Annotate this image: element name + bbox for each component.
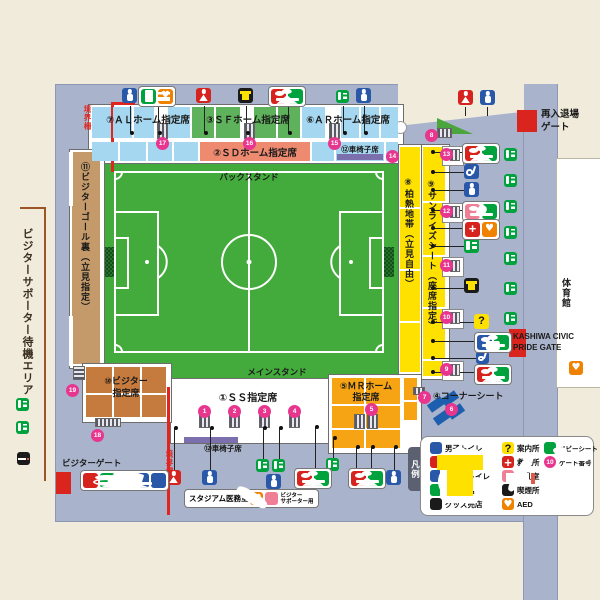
stairs-icon	[437, 128, 452, 138]
goods-shop-icon	[464, 278, 479, 293]
gate-number-badge: 4	[288, 405, 301, 418]
gate-number-badge: 18	[91, 429, 104, 442]
stairs-icon	[354, 414, 365, 429]
gate-number-badge: 2	[228, 405, 241, 418]
first-aid-icon	[465, 222, 480, 237]
ar-stand-label: ⑥ＡＲホーム指定席	[296, 112, 400, 126]
legend-column-1: 男子トイレ 女子トイレ 多目的トイレ 飲食売店 グッズ売店	[430, 441, 490, 511]
first-aid-icon	[502, 456, 514, 468]
information-icon	[474, 314, 489, 329]
leader-dot	[333, 436, 337, 440]
legend-label: 案内所	[517, 443, 540, 454]
male-toilet-icon	[151, 473, 166, 488]
reentry-gate-label-2: ゲート	[541, 119, 570, 133]
goods-shop-icon	[238, 88, 253, 103]
medical-room-box: スタジアム医務室 ビジター サポーター用	[184, 489, 319, 508]
leader-line	[333, 438, 334, 458]
leader-line	[279, 428, 280, 459]
legend-column-3: ベビーシート 10ゲート番号	[544, 441, 598, 469]
male-toilet-icon	[386, 470, 401, 485]
main-stand-label: メインスタンド	[240, 366, 314, 378]
leader-dot	[246, 131, 250, 135]
icon-group	[474, 332, 512, 353]
gate-number-badge: 10	[440, 311, 453, 324]
legend-label: AED	[517, 500, 533, 509]
aed-icon	[502, 498, 514, 510]
aed-icon	[569, 361, 583, 375]
male-toilet-icon	[464, 182, 479, 197]
icon-group	[268, 86, 306, 107]
food-shop-icon	[504, 312, 517, 325]
food-shop-icon	[336, 90, 349, 103]
gate-number-badge: 3	[258, 405, 271, 418]
seat-block	[404, 402, 417, 420]
kashiwa-civic-pride-gate-label-2: PRIDE GATE	[513, 343, 561, 352]
ss-stand-label: ①ＳＳ指定席	[198, 389, 298, 404]
leader-line	[465, 107, 466, 116]
food-shop-icon	[504, 200, 517, 213]
stadium-map: 体育館 バックスタンド メ	[0, 0, 600, 600]
gate-number-badge: 16	[243, 137, 256, 150]
food-shop-icon	[430, 484, 442, 496]
al-stand-label: ⑦ＡＬホーム指定席	[96, 112, 200, 126]
visitor-gate-marker	[56, 472, 71, 494]
baby-seat-icon	[544, 442, 556, 454]
leader-line	[356, 447, 357, 468]
leader-dot	[356, 445, 360, 449]
icon-group	[138, 86, 176, 107]
legend-label: 喫煙所	[517, 485, 540, 496]
icon-group	[462, 143, 500, 164]
leader-dot	[263, 426, 267, 430]
leader-dot	[279, 426, 283, 430]
gate-number-badge: 19	[66, 384, 79, 397]
gate-number-badge: 5	[365, 403, 378, 416]
gate-number-badge: 7	[418, 391, 431, 404]
goods-shop-icon	[430, 498, 442, 510]
waiting-area-label: ビジターサポーター待機エリア	[19, 228, 35, 414]
back-stand-label: バックスタンド	[212, 171, 286, 183]
leader-dot	[158, 131, 162, 135]
gate-number-badge: 14	[386, 150, 399, 163]
food-shop-icon	[16, 398, 29, 411]
mr-stand-label-2: 指定席	[332, 390, 400, 403]
leader-line	[434, 341, 474, 342]
leader-dot	[371, 445, 375, 449]
female-toilet-icon	[458, 90, 473, 105]
sunrise-label: ⑨サンライズシート（座席指定）	[426, 180, 439, 370]
visitor-goal-aisle	[69, 152, 73, 206]
food-shop-icon	[464, 238, 479, 253]
icon-group	[294, 468, 332, 489]
food-shop-icon	[504, 174, 517, 187]
seat-block	[92, 142, 118, 161]
leader-line	[434, 172, 464, 173]
wheelchair-back-label: ⑫車椅子席	[334, 144, 386, 155]
food-shop-icon	[504, 148, 517, 161]
icon-group	[348, 468, 386, 489]
hakunetsu-label: ⑧柏熱地帯（立見自由）	[403, 178, 416, 368]
icon-group	[462, 219, 500, 240]
gym-building	[556, 158, 600, 388]
sd-stand-label: ②ＳＤホーム指定席	[200, 145, 310, 159]
accessible-toilet-icon	[464, 164, 479, 179]
leader-line	[263, 428, 264, 459]
gate-number-badge: 9	[440, 363, 453, 376]
kashiwa-civic-pride-gate-label-1: KASHIWA CIVIC	[513, 332, 574, 341]
gate-number-badge: 11	[440, 259, 453, 272]
icon-group	[474, 364, 512, 385]
gate-number-badge: 12	[440, 205, 453, 218]
gate-number-badge: 6	[445, 403, 458, 416]
female-toilet-icon	[196, 88, 211, 103]
visitor-supporter-label-2: サポーター用	[280, 499, 313, 505]
male-toilet-icon	[480, 90, 495, 105]
gate-number-badge: 17	[156, 137, 169, 150]
food-shop-icon	[504, 282, 517, 295]
aed-icon	[482, 222, 497, 237]
leader-dot	[204, 131, 208, 135]
leader-dot	[431, 170, 435, 174]
seat-block	[174, 142, 198, 161]
pitch	[97, 163, 398, 385]
gate-number-icon: 10	[544, 456, 556, 468]
gate-number-badge: 13	[440, 148, 453, 161]
gate-number-badge: 15	[328, 137, 341, 150]
leader-dot	[174, 426, 178, 430]
leader-line	[371, 447, 372, 468]
food-shop-icon	[504, 252, 517, 265]
corner-seat-label: ④コーナーシート	[433, 389, 503, 402]
ss-stand-base	[170, 378, 334, 444]
icon-group	[80, 470, 169, 491]
leader-line	[434, 358, 476, 359]
male-toilet-icon	[356, 88, 371, 103]
wheelchair-main-label: ⑫車椅子席	[193, 443, 253, 454]
visitor-seats-label-2: 指定席	[84, 386, 168, 399]
visitor-goal-label: ⑪ビジターゴール裏（立見指定）	[79, 162, 92, 362]
male-toilet-icon	[430, 442, 442, 454]
nursing-room-icon	[265, 492, 278, 505]
leader-line	[394, 447, 395, 470]
food-shop-icon	[256, 459, 269, 472]
leader-dot	[288, 131, 292, 135]
legend-column-2: 案内所 救護所 授乳室 喫煙所 AED	[502, 441, 540, 511]
leader-dot	[364, 131, 368, 135]
visitor-goal-aisle	[69, 316, 73, 366]
smoking-area-icon	[17, 452, 30, 465]
seat-block	[120, 142, 146, 161]
male-toilet-icon	[266, 474, 281, 489]
food-shop-icon	[504, 226, 517, 239]
leader-line	[315, 427, 316, 468]
male-toilet-icon	[202, 470, 217, 485]
gate-number-badge: 1	[198, 405, 211, 418]
information-icon	[502, 442, 514, 454]
leader-dot	[130, 131, 134, 135]
leader-line	[487, 107, 488, 116]
leader-dot	[394, 445, 398, 449]
male-toilet-icon	[122, 88, 137, 103]
leader-dot	[431, 150, 435, 154]
leader-dot	[315, 425, 319, 429]
visitor-gate-label: ビジターゲート	[62, 457, 121, 469]
leader-dot	[343, 131, 347, 135]
leader-dot	[210, 426, 214, 430]
reentry-gate-label-1: 再入退場	[541, 106, 579, 120]
gate-number-badge: 8	[425, 129, 438, 142]
road	[523, 84, 558, 600]
sf-stand-label: ③ＳＦホーム指定席	[196, 112, 300, 126]
reentry-gate-marker	[517, 110, 537, 132]
food-shop-icon	[16, 421, 29, 434]
food-shop-icon	[272, 459, 285, 472]
gym-label: 体育館	[560, 278, 573, 308]
leader-dot	[431, 370, 435, 374]
stairs-icon	[95, 418, 121, 427]
stairs-icon	[367, 414, 378, 429]
food-shop-icon	[141, 89, 156, 104]
